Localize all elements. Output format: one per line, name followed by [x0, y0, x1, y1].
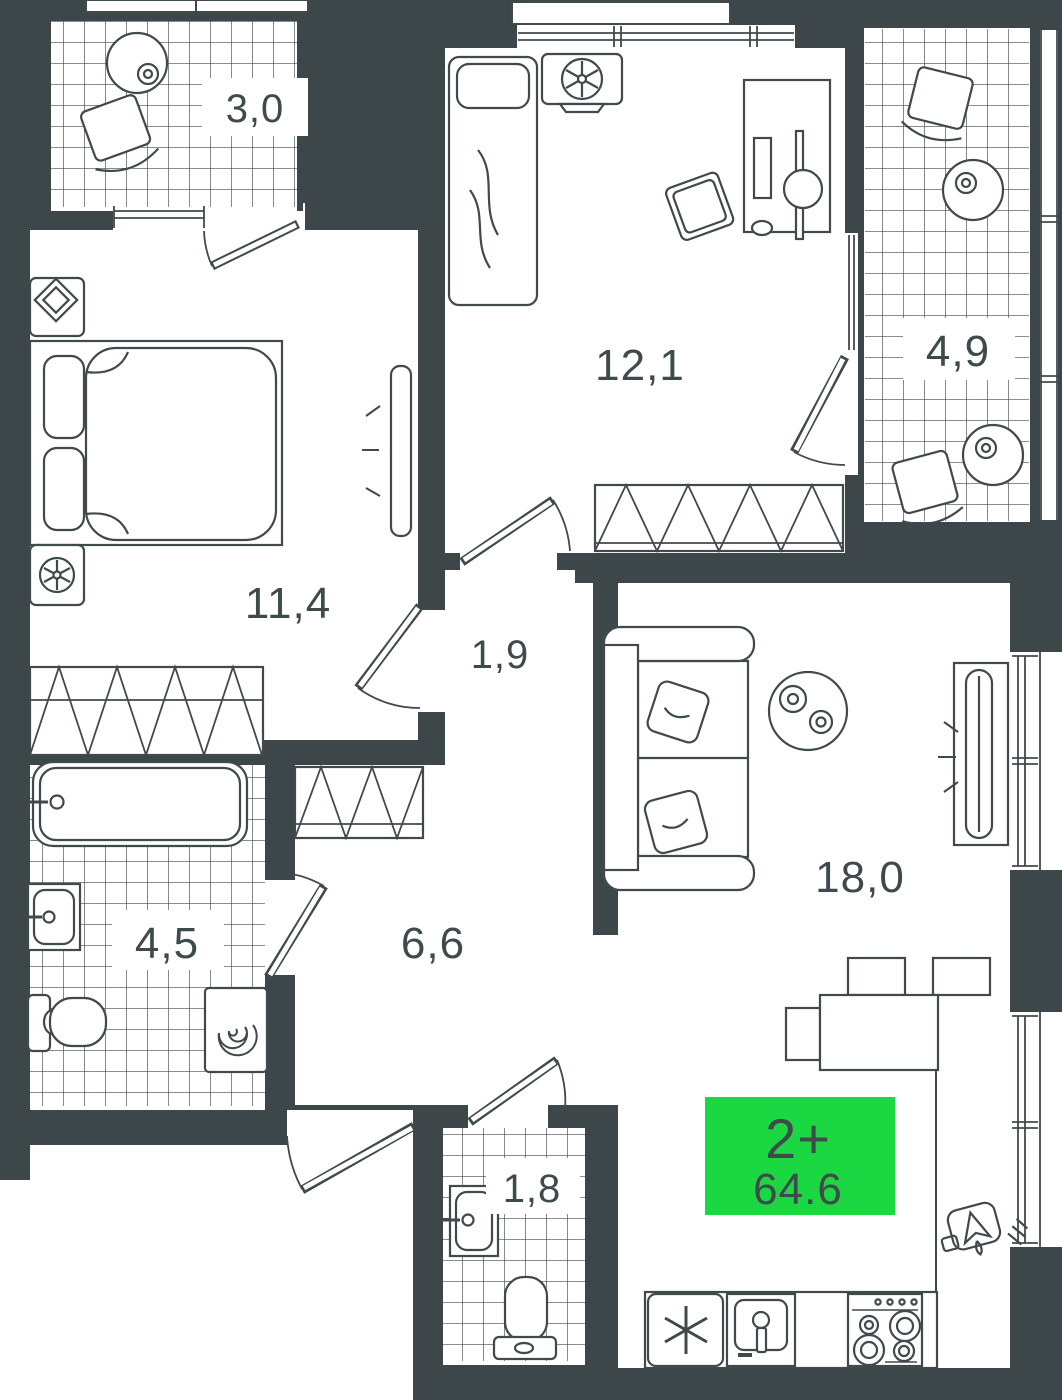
monitor-stand: [784, 170, 822, 208]
pillow-icon: [44, 356, 84, 438]
pillow-icon: [457, 64, 529, 108]
mattress: [86, 348, 276, 540]
tv-icon: [391, 366, 411, 536]
tv-stand-icon: [954, 663, 1008, 845]
sink-icon: [28, 884, 80, 950]
bar-stool-icon: [786, 1008, 820, 1060]
round-table-icon: [107, 33, 167, 93]
coffee-table-icon: [769, 672, 847, 750]
stove-icon: [848, 1294, 922, 1366]
ac-vent: [560, 104, 604, 112]
room-label-balcony-large: 4,9: [926, 327, 990, 376]
room-label-hallway: 6,6: [401, 919, 465, 968]
bathtub-icon: [30, 762, 247, 846]
sofa-icon: [604, 627, 754, 890]
unit-type-label: 2+: [765, 1107, 831, 1170]
unit-area-value: 64.6: [753, 1165, 843, 1214]
wardrobe-icon: [30, 667, 263, 755]
pillow-icon: [44, 448, 84, 530]
washing-machine-icon: [205, 988, 267, 1072]
hall-cabinet-icon: [295, 767, 423, 838]
room-label-living: 18,0: [815, 853, 905, 902]
sink-icon: [727, 1294, 795, 1366]
bar-counter: [820, 995, 938, 1070]
floorplan: 3,0 12,1 4,9 11,4 1,9 18,0 4,5 6,6 1,8 2…: [0, 0, 1062, 1400]
room-label-balcony-small: 3,0: [226, 87, 285, 131]
mouse-icon: [752, 221, 772, 235]
room-label-hall-small: 1,9: [471, 633, 530, 677]
room-label-bedroom-second: 12,1: [595, 341, 685, 390]
room-label-wc: 1,8: [503, 1167, 562, 1211]
fridge-icon: [648, 1294, 723, 1366]
room-label-bedroom-main: 11,4: [245, 579, 331, 628]
bar-stool-icon: [933, 958, 990, 995]
ventilation-fan-icon: [40, 558, 74, 592]
bar-stool-icon: [848, 958, 905, 995]
ventilation-fan-icon: [562, 59, 602, 99]
desk-shelf: [754, 138, 771, 198]
unit-badge: 2+ 64.6: [705, 1097, 895, 1215]
wardrobe-icon: [595, 485, 843, 551]
toilet-icon: [28, 995, 106, 1051]
room-label-bathroom: 4,5: [135, 919, 199, 968]
floorplan-canvas: 3,0 12,1 4,9 11,4 1,9 18,0 4,5 6,6 1,8 2…: [0, 0, 1062, 1400]
